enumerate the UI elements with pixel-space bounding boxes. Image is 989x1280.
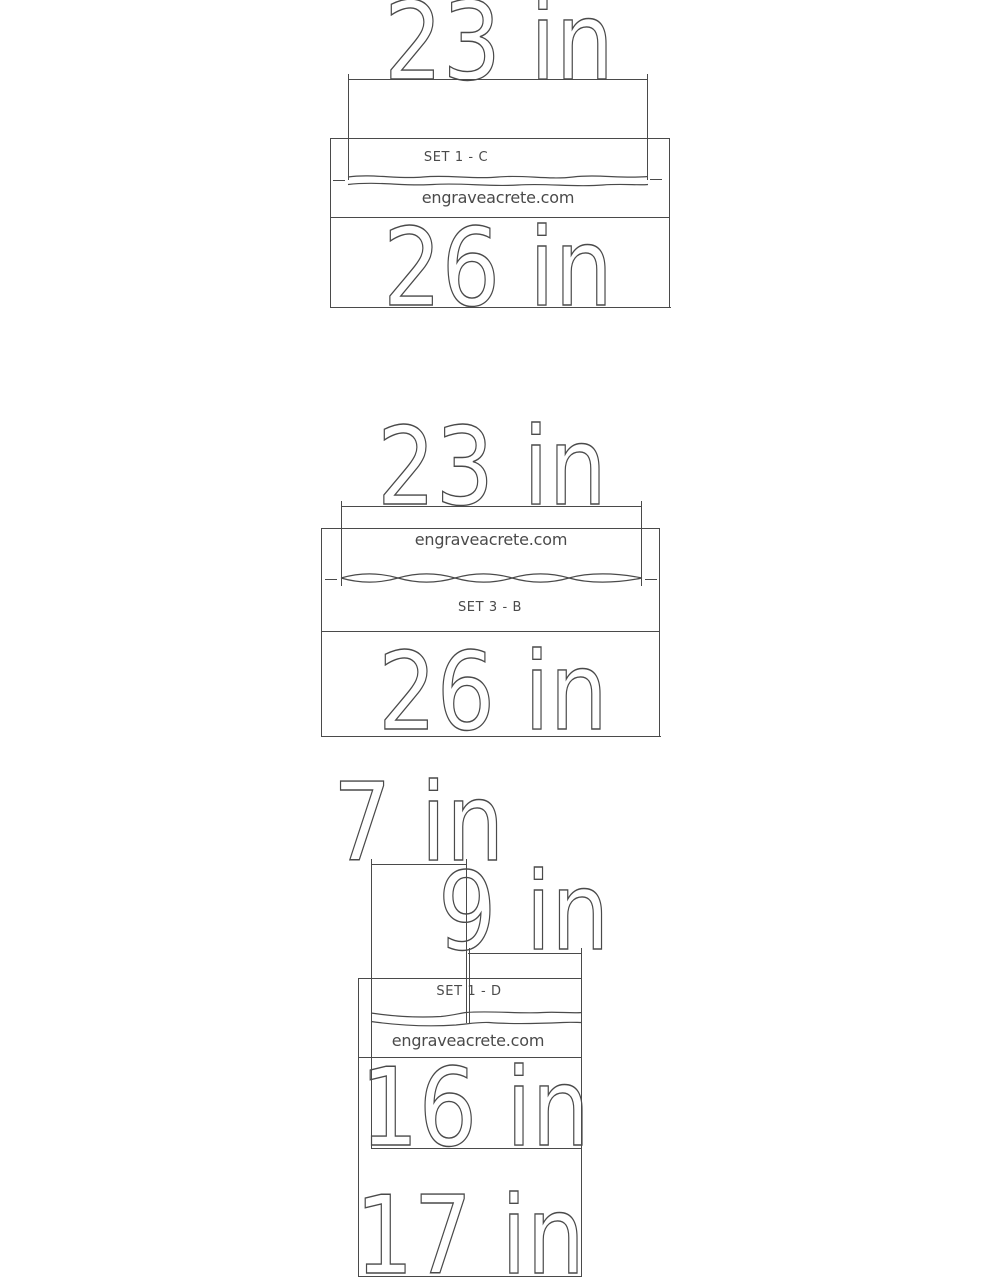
set1d-outer-bottom-edge [358,1276,582,1277]
set1d-dim9-line [468,953,582,954]
set1d-box-top-edge [358,978,582,979]
set1d-set-label: SET 1 - D [419,985,519,998]
set1d-torn-edge-icon [371,1006,582,1030]
dimension-label-outer-height-set1d: 17 in [343,1183,598,1280]
dimension-label-lower-width-set1d: 9 in [438,859,608,967]
set1d-inner-bottom-line [371,1148,582,1149]
dimension-label-inner-height-set1d: 16 in [348,1055,603,1163]
drawing-canvas: 23 in SET 1 - C engraveacrete.com 26 in … [0,0,989,1280]
figure-set-1-d: 7 in 9 in SET 1 - D engraveacrete.com 16… [0,0,989,1280]
